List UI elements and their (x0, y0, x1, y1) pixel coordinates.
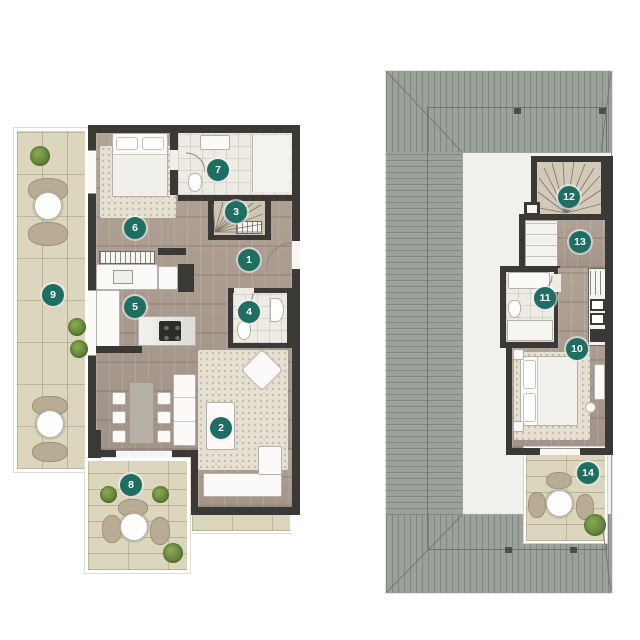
sofa (173, 374, 196, 446)
terrace-upper-floor (524, 447, 607, 543)
window-kitchen (88, 290, 96, 356)
dining-chair (112, 430, 126, 443)
roof-vent (599, 108, 606, 114)
room-marker-2: 2 (210, 417, 232, 439)
sectional-sofa-chaise (258, 446, 282, 475)
kitchen-counter-side (96, 290, 120, 352)
terrace-chair (150, 517, 170, 545)
wall-segment (96, 346, 142, 353)
wall-segment (158, 248, 186, 255)
terrace-chair (546, 472, 572, 489)
terrace-door-opening (540, 448, 580, 455)
room-marker-14: 14 (577, 462, 599, 484)
kitchen-island (138, 316, 196, 346)
potted-plant-icon (30, 146, 50, 166)
entry-door-opening (292, 241, 300, 269)
roof-vent (505, 547, 512, 553)
potted-plant-icon (100, 486, 117, 503)
wall-segment (178, 264, 194, 292)
bathroom-sink (270, 298, 284, 322)
bush-icon (163, 543, 183, 563)
radiator (99, 251, 155, 264)
duvet (113, 154, 167, 196)
pillow (523, 360, 536, 389)
dining-chair (157, 411, 171, 424)
terrace-chair (102, 515, 122, 543)
roof-vent (514, 108, 521, 114)
kitchen-counter (96, 264, 158, 290)
wardrobe-dark-box (590, 329, 605, 342)
room-marker-8: 8 (120, 474, 142, 496)
window-bedroom (88, 150, 96, 194)
stool (585, 402, 596, 413)
sliding-door-terrace (116, 450, 172, 458)
bush-icon (68, 318, 86, 336)
terrace-chair (528, 492, 546, 518)
potted-plant-icon (152, 486, 169, 503)
room-marker-11: 11 (534, 287, 556, 309)
terrace-table (36, 410, 64, 438)
room-marker-13: 13 (569, 231, 591, 253)
stair-nib (524, 202, 540, 216)
dining-chair (157, 392, 171, 405)
pillow (116, 137, 138, 150)
roof-vent (570, 547, 577, 553)
double-bed-upper (520, 356, 578, 426)
bathroom-lower (228, 288, 292, 348)
door-opening (234, 288, 254, 293)
room-marker-7: 7 (207, 159, 229, 181)
dining-table (129, 382, 154, 444)
room-marker-12: 12 (558, 186, 580, 208)
bathroom-sink (200, 135, 230, 150)
wardrobe-box (590, 313, 605, 325)
bush-icon (584, 514, 606, 536)
bush-icon (70, 340, 88, 358)
pillow (523, 393, 536, 422)
unit-right-wall (605, 156, 613, 448)
room-marker-10: 10 (566, 338, 588, 360)
balcony-strip (190, 515, 292, 533)
dining-chair (112, 392, 126, 405)
shower (507, 320, 553, 341)
pillow (142, 137, 164, 150)
wardrobe-shelves (590, 271, 605, 295)
dining-chair (112, 411, 126, 424)
bedroom-left-wall (506, 342, 512, 448)
nightstand (513, 421, 524, 432)
door-opening (553, 274, 561, 292)
shower-area (252, 135, 290, 192)
terrace-table (546, 490, 573, 517)
room-marker-1: 1 (238, 249, 260, 271)
dresser (594, 364, 605, 400)
upper-hall (519, 220, 607, 268)
toilet (508, 300, 521, 318)
wardrobe-box (590, 299, 605, 311)
wall-stub (88, 430, 101, 458)
terrace-chair (32, 442, 68, 462)
floor-plan-sheet: 1 2 3 4 5 6 7 8 9 10 11 12 13 14 (0, 0, 640, 640)
terrace-table (34, 192, 62, 220)
dining-chair (157, 430, 171, 443)
toilet (188, 173, 202, 192)
double-bed (112, 133, 168, 197)
sectional-sofa (203, 473, 282, 497)
nightstand (513, 349, 524, 360)
fridge (158, 266, 178, 290)
room-marker-3: 3 (225, 201, 247, 223)
terrace-chair (28, 222, 68, 246)
room-marker-9: 9 (42, 284, 64, 306)
room-marker-5: 5 (124, 296, 146, 318)
duvet (537, 357, 577, 425)
bathroom-upper (178, 133, 292, 195)
radiator (236, 221, 262, 234)
toilet (237, 321, 251, 340)
kitchen-sink (113, 270, 133, 284)
cooktop (159, 321, 181, 341)
closet (525, 220, 558, 268)
room-marker-6: 6 (124, 217, 146, 239)
wall-segment (265, 201, 271, 240)
terrace-table (120, 513, 148, 541)
room-marker-4: 4 (238, 301, 260, 323)
door-opening (170, 150, 178, 170)
